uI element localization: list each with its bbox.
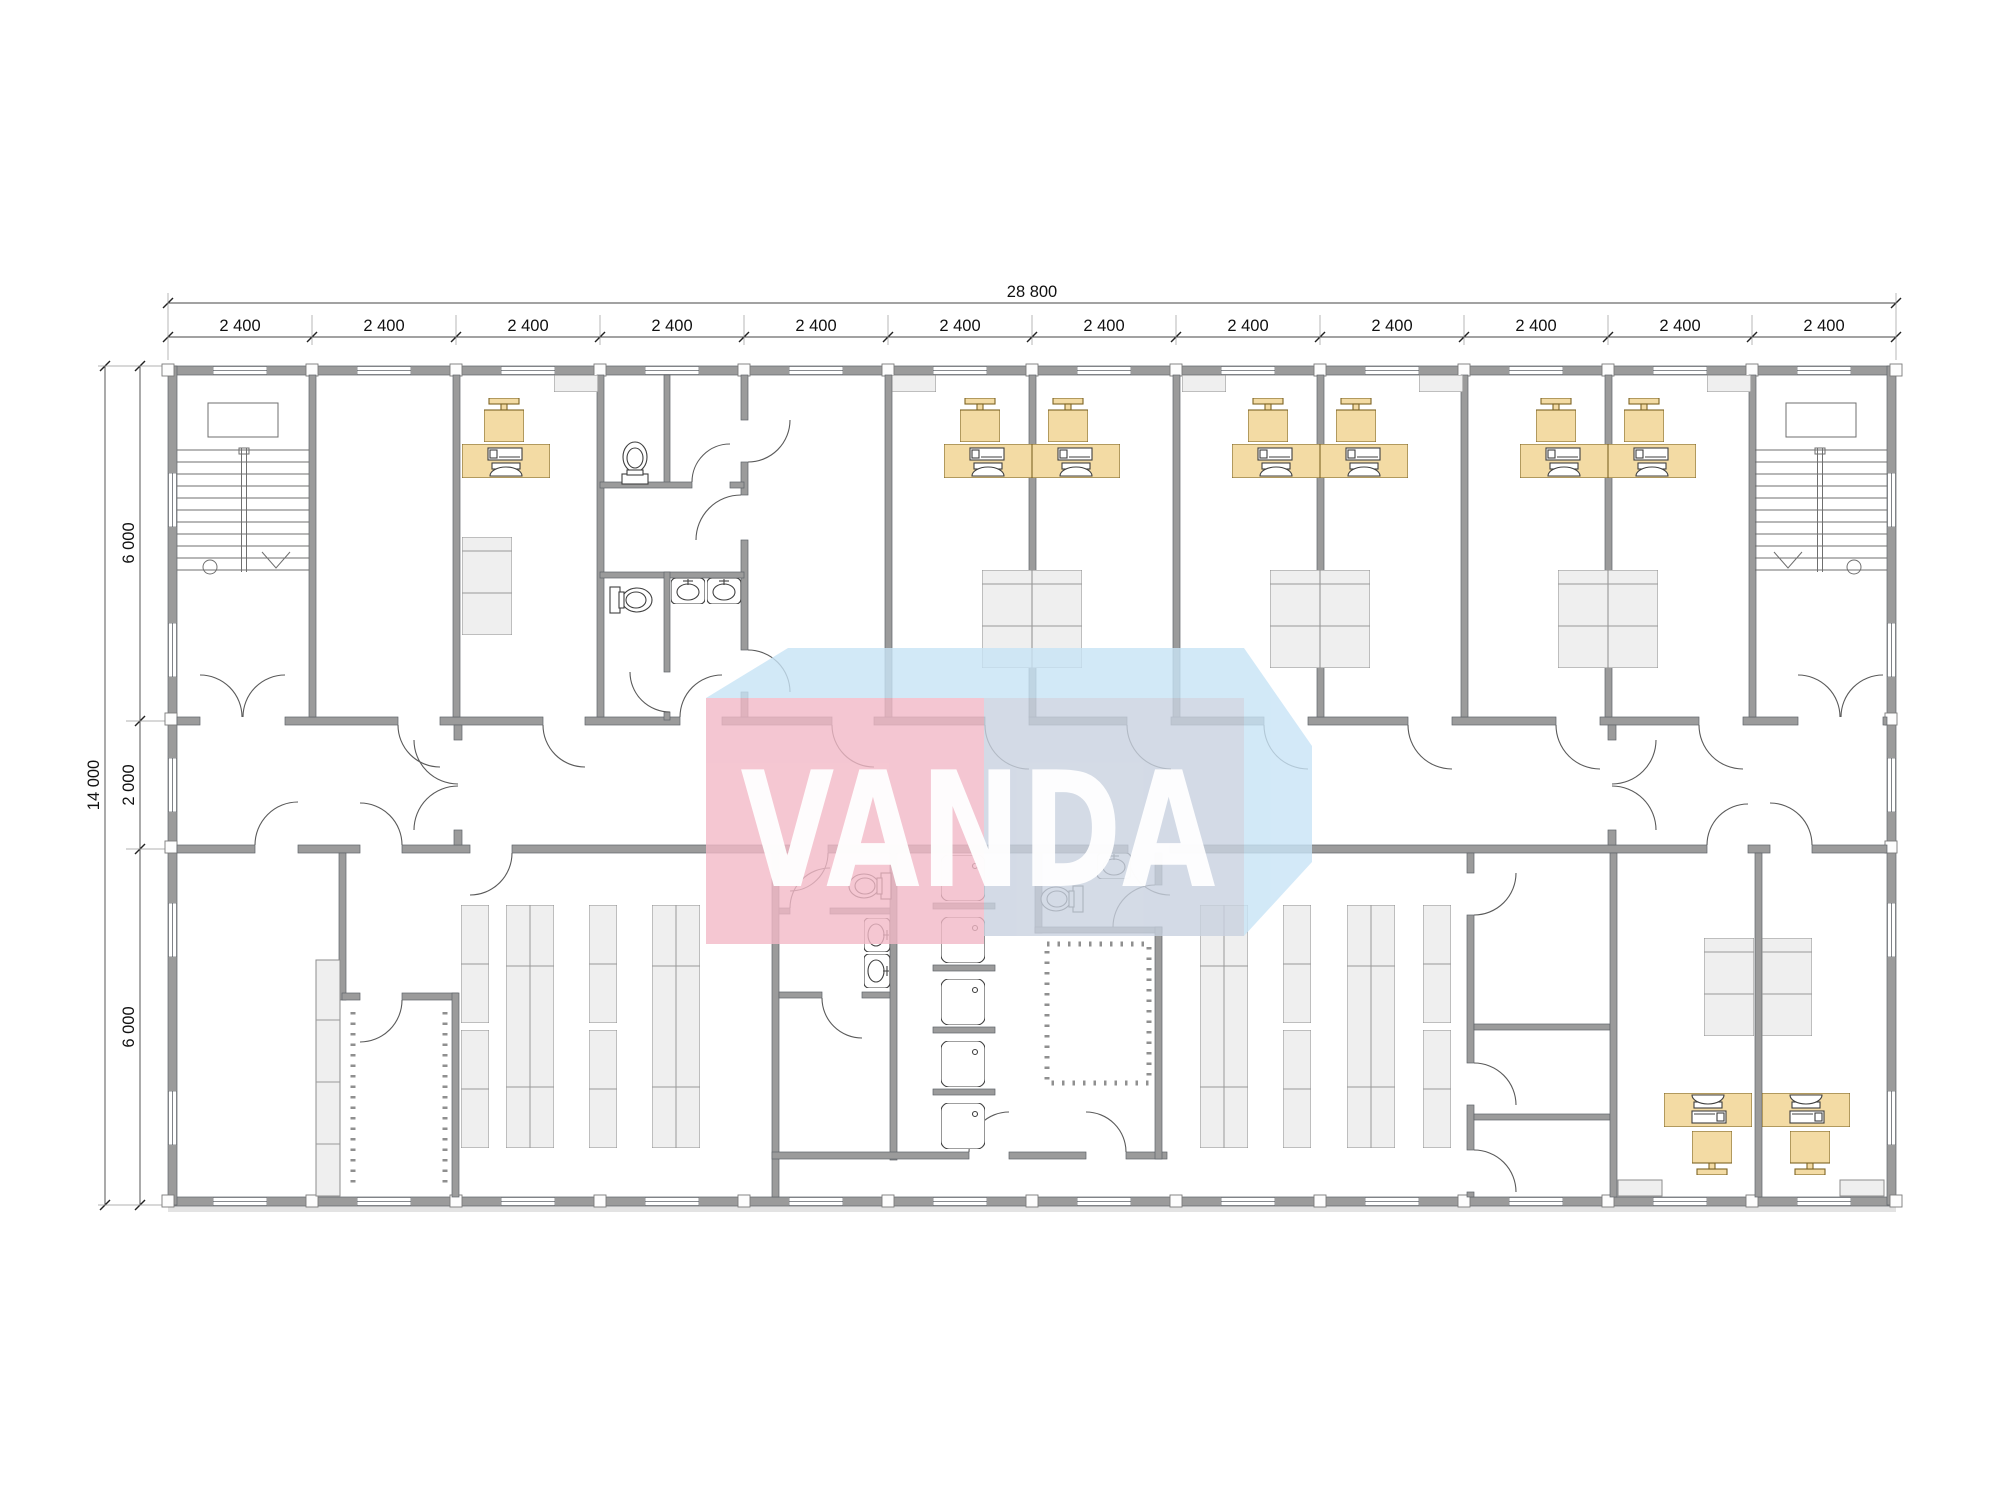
svg-text:2 400: 2 400 — [363, 317, 404, 335]
svg-text:6 000: 6 000 — [120, 522, 138, 563]
svg-text:2 400: 2 400 — [939, 317, 980, 335]
shower-icon — [941, 1041, 985, 1087]
sink-icon — [864, 954, 890, 988]
wardrobe — [462, 537, 512, 635]
dim-total-width: 28 800 — [1007, 283, 1057, 301]
svg-text:2 400: 2 400 — [1371, 317, 1412, 335]
office-desk — [462, 444, 550, 478]
dim-labels-left: 6 000 2 000 6 000 — [120, 522, 138, 1047]
floor-plan-canvas: 28 800 2 400 2 400 2 400 2 400 2 400 2 4… — [0, 0, 2000, 1500]
svg-text:2 400: 2 400 — [507, 317, 548, 335]
shower-icon — [941, 1103, 985, 1149]
toilet-icon — [622, 442, 648, 484]
svg-text:2 000: 2 000 — [120, 764, 138, 805]
watermark-blue-band — [706, 648, 1244, 698]
dim-total-height: 14 000 — [85, 760, 103, 810]
svg-text:2 400: 2 400 — [219, 317, 260, 335]
svg-text:2 400: 2 400 — [1227, 317, 1268, 335]
svg-text:2 400: 2 400 — [1803, 317, 1844, 335]
svg-text:6 000: 6 000 — [120, 1006, 138, 1047]
watermark-text: VANDA — [741, 737, 1216, 924]
svg-text:2 400: 2 400 — [1659, 317, 1700, 335]
office-desk — [1762, 1093, 1850, 1127]
cabinet — [554, 375, 598, 392]
shower-icon — [941, 979, 985, 1025]
sink-icon — [707, 578, 741, 604]
svg-text:2 400: 2 400 — [1083, 317, 1124, 335]
office-desk — [1664, 1093, 1752, 1127]
svg-text:2 400: 2 400 — [1515, 317, 1556, 335]
toilet-icon — [610, 587, 652, 613]
svg-text:2 400: 2 400 — [795, 317, 836, 335]
sink-icon — [671, 578, 705, 604]
svg-text:2 400: 2 400 — [651, 317, 692, 335]
